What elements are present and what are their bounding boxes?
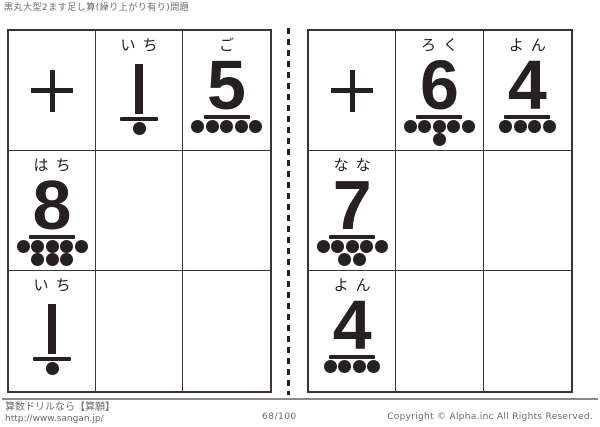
- dot-row: [404, 120, 475, 133]
- number-card-cell: いち: [96, 31, 183, 151]
- dot-row: [133, 122, 146, 135]
- dot-row: [31, 253, 73, 266]
- counting-dot: [499, 120, 512, 133]
- number-underline: [33, 357, 71, 361]
- dot-row: [433, 133, 446, 146]
- dot-row: [17, 240, 88, 253]
- counting-dot: [220, 120, 233, 133]
- counting-dot: [447, 120, 460, 133]
- number-underline: [120, 117, 158, 121]
- counting-dot: [462, 120, 475, 133]
- plus-icon: [31, 70, 73, 112]
- empty-answer-cell: [183, 271, 270, 391]
- number-card-cell: なな7: [309, 151, 396, 271]
- dot-row: [499, 120, 556, 133]
- operator-cell: [309, 31, 396, 151]
- dot-group: [17, 240, 88, 266]
- counting-dot: [235, 120, 248, 133]
- counting-dot: [324, 360, 337, 373]
- dot-group: [191, 120, 262, 133]
- counting-dot: [331, 240, 344, 253]
- worksheet-page: 黒丸大型2ます足し算(繰り上がり有り)問題 いちご5はち8いち ろく6よん4なな…: [0, 0, 600, 427]
- dot-group: [133, 122, 146, 135]
- number-underline: [204, 115, 250, 119]
- counting-dot: [133, 122, 146, 135]
- counting-dot: [338, 360, 351, 373]
- problem-table-left: いちご5はち8いち: [7, 29, 272, 393]
- dot-group: [46, 362, 59, 375]
- counting-dot: [249, 120, 262, 133]
- dot-group: [324, 360, 381, 373]
- dot-row: [338, 253, 366, 266]
- number-card-cell: はち8: [9, 151, 96, 271]
- dot-row: [46, 362, 59, 375]
- counting-dot: [60, 240, 73, 253]
- number-card-cell: ご5: [183, 31, 270, 151]
- page-indicator: 68/100: [262, 412, 297, 422]
- footer-site-url[interactable]: http://www.sangan.jp/: [5, 414, 104, 424]
- operator-cell: [9, 31, 96, 151]
- counting-dot: [317, 240, 330, 253]
- number-underline: [416, 115, 462, 119]
- copyright-text: Copyright © Alpha.inc All Rights Reserve…: [387, 412, 593, 422]
- numeral-1-glyph: [135, 64, 143, 114]
- counting-dot: [206, 120, 219, 133]
- counting-dot: [367, 360, 380, 373]
- numeral: 4: [508, 57, 547, 113]
- counting-dot: [543, 120, 556, 133]
- counting-dot: [17, 240, 30, 253]
- empty-answer-cell: [484, 151, 571, 271]
- counting-dot: [404, 120, 417, 133]
- counting-dot: [418, 120, 431, 133]
- number-underline: [504, 115, 550, 119]
- counting-dot: [46, 362, 59, 375]
- counting-dot: [375, 240, 388, 253]
- counting-dot: [433, 133, 446, 146]
- page-title: 黒丸大型2ます足し算(繰り上がり有り)問題: [4, 3, 189, 14]
- problem-table-right: ろく6よん4なな7よん4: [307, 29, 573, 393]
- counting-dot: [46, 253, 59, 266]
- dot-row: [324, 360, 381, 373]
- plus-icon: [331, 70, 373, 112]
- dot-group: [404, 120, 475, 146]
- number-card-cell: よん4: [309, 271, 396, 391]
- counting-dot: [46, 240, 59, 253]
- numeral: 4: [333, 297, 372, 353]
- number-card-cell: いち: [9, 271, 96, 391]
- number-underline: [329, 235, 375, 239]
- counting-dot: [528, 120, 541, 133]
- number-underline: [329, 355, 375, 359]
- numeral-1-glyph: [48, 304, 56, 354]
- counting-dot: [346, 240, 359, 253]
- dashed-cut-line: [287, 28, 290, 395]
- counting-dot: [353, 253, 366, 266]
- counting-dot: [338, 253, 351, 266]
- counting-dot: [360, 240, 373, 253]
- counting-dot: [433, 120, 446, 133]
- dot-row: [191, 120, 262, 133]
- counting-dot: [60, 253, 73, 266]
- empty-answer-cell: [96, 151, 183, 271]
- footer-divider: [2, 398, 598, 400]
- empty-answer-cell: [396, 271, 483, 391]
- empty-answer-cell: [96, 271, 183, 391]
- counting-dot: [191, 120, 204, 133]
- counting-dot: [31, 240, 44, 253]
- number-card-cell: よん4: [484, 31, 571, 151]
- counting-dot: [353, 360, 366, 373]
- dot-row: [317, 240, 388, 253]
- counting-dot: [31, 253, 44, 266]
- counting-dot: [75, 240, 88, 253]
- empty-answer-cell: [396, 151, 483, 271]
- number-reading: いち: [33, 277, 77, 294]
- dot-group: [317, 240, 388, 266]
- number-reading: いち: [120, 37, 164, 54]
- numeral: 5: [207, 57, 246, 113]
- empty-answer-cell: [484, 271, 571, 391]
- number-card-cell: ろく6: [396, 31, 483, 151]
- numeral: 6: [420, 57, 459, 113]
- number-underline: [29, 235, 75, 239]
- dot-group: [499, 120, 556, 133]
- counting-dot: [514, 120, 527, 133]
- empty-answer-cell: [183, 151, 270, 271]
- numeral: 8: [33, 177, 72, 233]
- numeral: 7: [333, 177, 372, 233]
- footer-site-label: 算数ドリルなら【算願】: [5, 402, 115, 413]
